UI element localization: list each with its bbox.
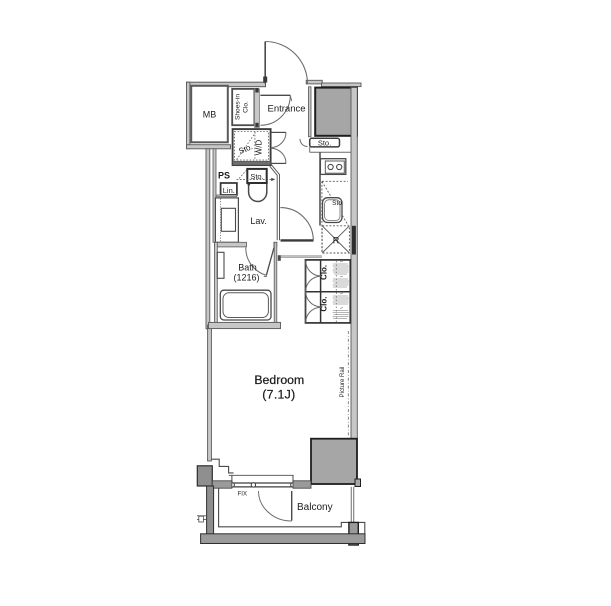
svg-text:Clo.: Clo. xyxy=(243,101,250,113)
svg-text:Shoes-in: Shoes-in xyxy=(235,94,242,120)
svg-text:Bath: Bath xyxy=(238,263,257,273)
svg-text:Entrance: Entrance xyxy=(267,104,305,115)
svg-text:Lin.: Lin. xyxy=(223,186,235,195)
svg-text:PS: PS xyxy=(218,171,230,181)
svg-text:Picture Rail: Picture Rail xyxy=(340,367,346,398)
svg-text:Bedroom: Bedroom xyxy=(254,373,304,387)
svg-text:W/D: W/D xyxy=(255,140,264,156)
svg-text:Sto: Sto xyxy=(332,200,342,207)
svg-text:Lav.: Lav. xyxy=(250,216,266,226)
svg-text:Sto.: Sto. xyxy=(318,138,331,147)
svg-text:(1216): (1216) xyxy=(233,273,259,283)
svg-text:Clo.: Clo. xyxy=(320,265,329,280)
svg-text:Balcony: Balcony xyxy=(297,502,333,513)
svg-text:R: R xyxy=(333,236,340,246)
svg-text:MB: MB xyxy=(203,110,217,120)
svg-text:(7.1J): (7.1J) xyxy=(262,387,295,401)
svg-text:Clo.: Clo. xyxy=(320,297,329,312)
svg-text:FIX: FIX xyxy=(238,492,247,498)
